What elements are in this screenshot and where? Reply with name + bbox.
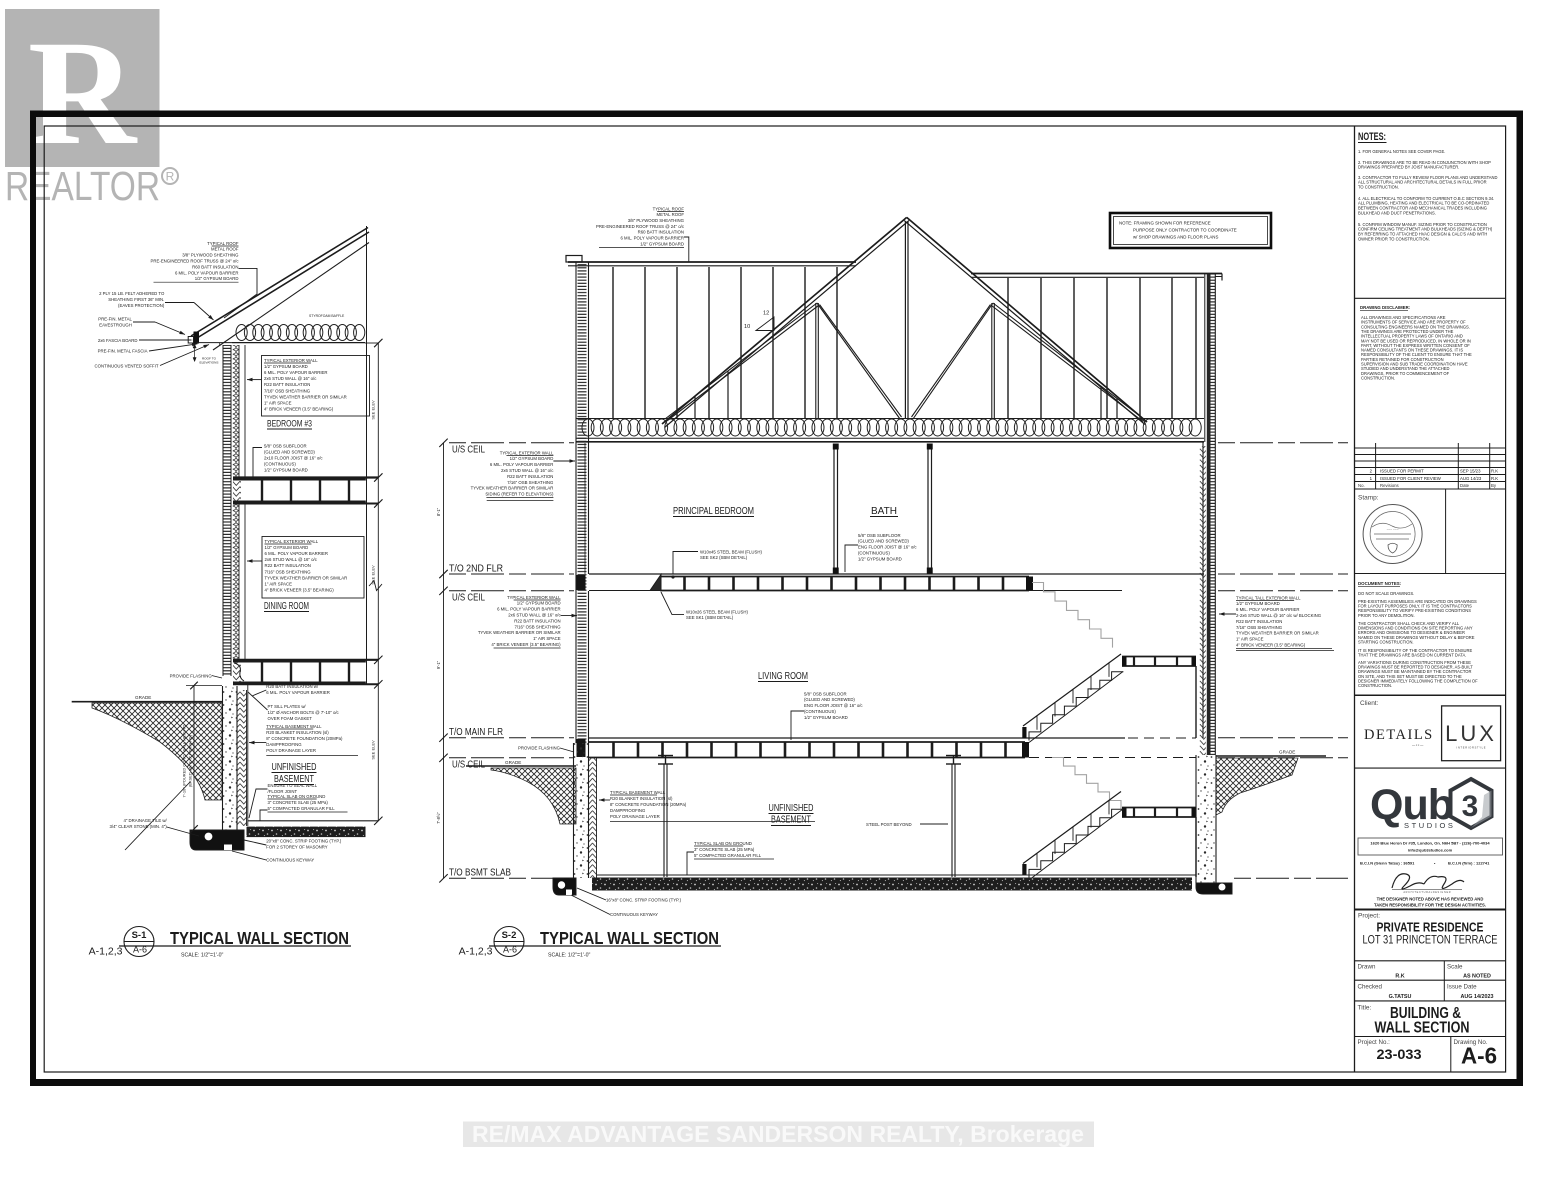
svg-text:TYVEK WEATHER BARRIER OR SIMIL: TYVEK WEATHER BARRIER OR SIMILAR	[264, 394, 347, 399]
svg-text:TYVEK WEATHER BARRIER OR SIMIL: TYVEK WEATHER BARRIER OR SIMILAR	[1236, 631, 1319, 636]
svg-text:DETAILS: DETAILS	[1364, 727, 1434, 743]
svg-text:REALTOR: REALTOR	[5, 163, 160, 209]
svg-text:(EAVES PROTECTION): (EAVES PROTECTION)	[118, 303, 165, 308]
svg-text:(GLUED AND SCREWED): (GLUED AND SCREWED)	[264, 449, 315, 454]
svg-text:POLY DRAINAGE LAYER: POLY DRAINAGE LAYER	[266, 748, 316, 753]
svg-text:Drawn: Drawn	[1358, 964, 1376, 971]
svg-text:Project:: Project:	[1358, 913, 1380, 920]
svg-text:1" AIR SPACE: 1" AIR SPACE	[1236, 637, 1264, 642]
svg-text:1/2" GYPSUM BOARD: 1/2" GYPSUM BOARD	[264, 364, 308, 369]
svg-text:TYPICAL BASEMENT WALL: TYPICAL BASEMENT WALL	[266, 724, 322, 729]
svg-text:1/2" GYPSUM BOARD: 1/2" GYPSUM BOARD	[195, 276, 239, 281]
svg-text:7/16" OSB SHEATHING: 7/16" OSB SHEATHING	[264, 388, 311, 393]
svg-text:DOCUMENT NOTES:: DOCUMENT NOTES:	[1358, 581, 1402, 586]
svg-text:R.K: R.K	[1395, 974, 1404, 980]
svg-text:R22 BATT INSULATION: R22 BATT INSULATION	[265, 563, 311, 568]
svg-text:2x6 STUD WALL @ 16" o/c: 2x6 STUD WALL @ 16" o/c	[508, 613, 561, 618]
svg-text:By: By	[1491, 483, 1497, 488]
svg-text:6 MIL. POLY VAPOUR BARRIER: 6 MIL. POLY VAPOUR BARRIER	[490, 462, 554, 467]
svg-text:3/8" PLYWOOD SHEATHING: 3/8" PLYWOOD SHEATHING	[628, 218, 685, 223]
svg-text:DINING ROOM: DINING ROOM	[264, 601, 309, 612]
svg-text:S-2: S-2	[502, 930, 517, 941]
svg-text:LIVING ROOM: LIVING ROOM	[758, 671, 808, 682]
svg-text:CONTINUOUS KEYWAY: CONTINUOUS KEYWAY	[266, 858, 314, 863]
svg-text:5/8" OSB SUBFLOOR: 5/8" OSB SUBFLOOR	[804, 691, 847, 696]
svg-text:Title:: Title:	[1358, 1005, 1372, 1012]
svg-text:20"x8" CONC. STRIP FOOTING (TY: 20"x8" CONC. STRIP FOOTING (TYP.)	[266, 838, 342, 843]
svg-text:ISSUED FOR CLIENT REVIEW: ISSUED FOR CLIENT REVIEW	[1380, 476, 1442, 481]
svg-text:TYPICAL ROOF: TYPICAL ROOF	[653, 206, 685, 211]
svg-text:T/O MAIN FLR: T/O MAIN FLR	[449, 727, 503, 738]
svg-text:TYPICAL WALL SECTION: TYPICAL WALL SECTION	[170, 928, 349, 948]
svg-text:SEE ELEV: SEE ELEV	[371, 400, 376, 420]
svg-text:LOT 31 PRINCETON TERRACE: LOT 31 PRINCETON TERRACE	[1363, 933, 1498, 947]
svg-text:TYPICAL SLAB ON GROUND: TYPICAL SLAB ON GROUND	[268, 794, 326, 799]
svg-text:1/2" GYPSUM BOARD: 1/2" GYPSUM BOARD	[1236, 601, 1280, 606]
svg-text:TYPICAL ROOF: TYPICAL ROOF	[207, 241, 239, 246]
svg-text:SEE SK1 (SBM DETAIL): SEE SK1 (SBM DETAIL)	[686, 615, 734, 620]
svg-text:OVER FOAM GASKET: OVER FOAM GASKET	[268, 716, 313, 721]
svg-text:CONSTRUCTION.: CONSTRUCTION.	[1361, 375, 1395, 380]
svg-text:3" CONCRETE SLAB (25 MPa): 3" CONCRETE SLAB (25 MPa)	[268, 800, 329, 805]
svg-text:R20 BLANKET INSULATION (sl): R20 BLANKET INSULATION (sl)	[266, 730, 329, 735]
svg-text:1/2" GYPSUM BOARD: 1/2" GYPSUM BOARD	[640, 241, 684, 246]
svg-text:POLY DRAINAGE LAYER: POLY DRAINAGE LAYER	[610, 814, 660, 819]
svg-text:12: 12	[763, 311, 769, 317]
svg-text:4" BRICK VENEER (3.5" BEARING): 4" BRICK VENEER (3.5" BEARING)	[264, 407, 334, 412]
svg-text:CONTINUOUS KEYWAY: CONTINUOUS KEYWAY	[610, 912, 658, 917]
svg-text:4" BRICK VENEER (3.5" BEARING): 4" BRICK VENEER (3.5" BEARING)	[265, 588, 335, 593]
svg-text:1" AIR SPACE: 1" AIR SPACE	[533, 636, 561, 641]
svg-text:8" CONCRETE FOUNDATION (20MPa): 8" CONCRETE FOUNDATION (20MPa)	[610, 802, 687, 807]
svg-text:Issue Date: Issue Date	[1447, 984, 1477, 991]
svg-text:R.K: R.K	[1491, 476, 1498, 481]
svg-text:UNFINISHED: UNFINISHED	[769, 803, 814, 814]
svg-text:3" CONCRETE SLAB (25 MPa): 3" CONCRETE SLAB (25 MPa)	[694, 847, 755, 852]
svg-text:Date: Date	[1460, 483, 1470, 488]
svg-text:3: 3	[1462, 790, 1479, 823]
svg-text:ENSURE TO SEAL WALL: ENSURE TO SEAL WALL	[268, 783, 318, 788]
svg-text:SCALE: 1/2"=1'-0": SCALE: 1/2"=1'-0"	[181, 953, 223, 959]
svg-text:SCALE: 1/2"=1'-0": SCALE: 1/2"=1'-0"	[548, 953, 590, 959]
svg-text:10: 10	[744, 324, 750, 330]
svg-text:SEE SK2 (SBM DETAIL): SEE SK2 (SBM DETAIL)	[700, 555, 748, 560]
svg-text:UNFINISHED: UNFINISHED	[272, 762, 317, 773]
svg-text:6 MIL. POLY VAPOUR BARRIER: 6 MIL. POLY VAPOUR BARRIER	[1236, 607, 1300, 612]
svg-text:4" BRICK VENEER (3.5" BEARING): 4" BRICK VENEER (3.5" BEARING)	[1236, 643, 1306, 648]
svg-text:2-2x6 STUD WALL @ 16" o/c w/ B: 2-2x6 STUD WALL @ 16" o/c w/ BLOCKING	[1236, 613, 1322, 618]
svg-text:TAKEN RESPONSIBILITY FOR THE D: TAKEN RESPONSIBILITY FOR THE DESIGN ACTI…	[1374, 903, 1486, 908]
svg-text:2x6 STUD WALL @ 16" o/c: 2x6 STUD WALL @ 16" o/c	[501, 468, 554, 473]
svg-text:Client:: Client:	[1360, 700, 1379, 707]
svg-text:A-1,2,3: A-1,2,3	[89, 946, 123, 958]
svg-text:CONSTRUCTION.: CONSTRUCTION.	[1358, 683, 1392, 688]
svg-text:PRINCIPAL BEDROOM: PRINCIPAL BEDROOM	[673, 505, 754, 517]
svg-text:7/16" OSB SHEATHING: 7/16" OSB SHEATHING	[514, 624, 561, 629]
svg-text:STEEL POST BEYOND: STEEL POST BEYOND	[866, 822, 912, 827]
svg-text:2x6 STUD WALL @ 16" o/c: 2x6 STUD WALL @ 16" o/c	[265, 557, 318, 562]
svg-text:6 MIL. POLY VAPOUR BARRIER: 6 MIL. POLY VAPOUR BARRIER	[265, 551, 329, 556]
svg-text:Project No.:: Project No.:	[1358, 1039, 1391, 1046]
svg-text:NOTE: FRAMING SHOWN FOR REFERE: NOTE: FRAMING SHOWN FOR REFERENCE	[1119, 221, 1211, 226]
svg-text:EAVESTROUGH: EAVESTROUGH	[99, 323, 132, 328]
svg-text:R60 BATT INSULATION: R60 BATT INSULATION	[192, 264, 238, 269]
svg-text:PRE-ENGINEERED ROOF TRUSS @ 24: PRE-ENGINEERED ROOF TRUSS @ 24" o/c	[151, 259, 240, 264]
svg-text:SHEATHING FIRST 36" MIN.: SHEATHING FIRST 36" MIN.	[108, 297, 164, 302]
svg-text:TYPICAL EXTERIOR WALL: TYPICAL EXTERIOR WALL	[264, 358, 318, 363]
svg-text:PRE-FIN. METAL FASCIA: PRE-FIN. METAL FASCIA	[98, 349, 148, 354]
svg-text:5/8" OSB SUBFLOOR: 5/8" OSB SUBFLOOR	[264, 443, 307, 448]
svg-text:1620 Blue Heron Dr #35, London: 1620 Blue Heron Dr #35, London, On. N6H …	[1370, 841, 1490, 846]
svg-text:BASEMENT: BASEMENT	[771, 815, 811, 826]
svg-text:SIDING (REFER TO ELEVATIONS): SIDING (REFER TO ELEVATIONS)	[485, 492, 554, 497]
svg-text:1/2" GYPSUM BOARD: 1/2" GYPSUM BOARD	[804, 715, 848, 720]
svg-text:PRIOR TO ANY DEMOLITION.: PRIOR TO ANY DEMOLITION.	[1358, 613, 1415, 618]
svg-text:TO CONSTRUCTION.: TO CONSTRUCTION.	[1358, 185, 1399, 190]
svg-text:BATH: BATH	[871, 505, 897, 517]
svg-text:PT SILL PLATES w/: PT SILL PLATES w/	[268, 704, 307, 709]
svg-text:DAMPPROOFING: DAMPPROOFING	[610, 808, 646, 813]
svg-text:SEP 15/23: SEP 15/23	[1460, 469, 1481, 474]
svg-text:ELEVATIONS: ELEVATIONS	[200, 361, 219, 365]
svg-text:STUDIOS: STUDIOS	[1404, 821, 1456, 830]
svg-text:Scale: Scale	[1447, 964, 1463, 971]
svg-text:PROVIDE FLASHING: PROVIDE FLASHING	[170, 673, 213, 678]
svg-text:(GLUED AND SCREWED): (GLUED AND SCREWED)	[858, 539, 909, 544]
svg-text:NOTES:: NOTES:	[1358, 131, 1386, 143]
svg-text:2x10 FLOOR JOIST @ 16" o/c: 2x10 FLOOR JOIST @ 16" o/c	[264, 455, 323, 460]
svg-text:16"x8" CONC. STRIP FOOTING (TY: 16"x8" CONC. STRIP FOOTING (TYP.)	[606, 898, 682, 903]
svg-text:TYPICAL EXTERIOR WALL: TYPICAL EXTERIOR WALL	[265, 539, 319, 544]
svg-text:W10x26 STEEL BEAM (FLUSH): W10x26 STEEL BEAM (FLUSH)	[686, 609, 748, 614]
svg-text:1/2" Ø ANCHOR BOLTS @ 7'-10" o: 1/2" Ø ANCHOR BOLTS @ 7'-10" o/c	[268, 710, 340, 715]
svg-text:7/16" OSB SHEATHING: 7/16" OSB SHEATHING	[1236, 625, 1283, 630]
svg-text:METAL ROOF: METAL ROOF	[211, 247, 239, 252]
svg-text:3/4" CLEAR STONE (MIN. 4"): 3/4" CLEAR STONE (MIN. 4")	[110, 824, 168, 829]
svg-text:6 MIL. POLY VAPOUR BARRIER: 6 MIL. POLY VAPOUR BARRIER	[266, 690, 330, 695]
svg-text:ENG FLOOR JOIST @ 16" o/c: ENG FLOOR JOIST @ 16" o/c	[858, 545, 917, 550]
svg-text:GRADE: GRADE	[1279, 750, 1295, 755]
svg-text:TYVEK WEATHER BARRIER OR SIMIL: TYVEK WEATHER BARRIER OR SIMILAR	[478, 630, 561, 635]
svg-text:4" BRICK VENEER (3.5" BEARING): 4" BRICK VENEER (3.5" BEARING)	[491, 642, 561, 647]
svg-text:U/S CEIL: U/S CEIL	[452, 760, 485, 771]
svg-text:R22 BATT INSULATION: R22 BATT INSULATION	[507, 474, 553, 479]
svg-text:PRE-FIN. METAL: PRE-FIN. METAL	[98, 316, 132, 321]
svg-text:FOR 2 STOREY OF MASONRY: FOR 2 STOREY OF MASONRY	[266, 844, 327, 849]
svg-text:1. FOR GENERAL NOTES SEE COVER: 1. FOR GENERAL NOTES SEE COVER PAGE.	[1358, 149, 1445, 154]
svg-text:9'-1": 9'-1"	[436, 660, 441, 669]
svg-text:2 PLY 15 LB. FELT ADHERED TO: 2 PLY 15 LB. FELT ADHERED TO	[99, 291, 165, 296]
svg-text:Checked: Checked	[1358, 984, 1383, 991]
svg-text:R22 BATT INSULATION: R22 BATT INSULATION	[264, 382, 310, 387]
svg-text:DAMPPROOFING: DAMPPROOFING	[266, 742, 302, 747]
svg-text:~~~ ~~~: ~~~ ~~~	[1387, 528, 1399, 532]
svg-text:info@qub3studios.com: info@qub3studios.com	[1408, 848, 1453, 853]
svg-text:TYVEK WEATHER BARRIER OR SIMIL: TYVEK WEATHER BARRIER OR SIMILAR	[471, 486, 554, 491]
svg-text:w/ SHOP DRAWINGS AND FLOOR PLA: w/ SHOP DRAWINGS AND FLOOR PLANS	[1133, 235, 1218, 240]
svg-text:CONTINUOUS VENTED SOFFIT: CONTINUOUS VENTED SOFFIT	[95, 364, 159, 369]
svg-text:1" AIR SPACE: 1" AIR SPACE	[264, 401, 292, 406]
svg-text:T/O 2ND FLR: T/O 2ND FLR	[449, 564, 503, 575]
svg-text:4" DRAINAGE TILE w/: 4" DRAINAGE TILE w/	[123, 818, 167, 823]
svg-text:TYPICAL EXTERIOR WALL: TYPICAL EXTERIOR WALL	[507, 595, 561, 600]
svg-text:PROVIDE FLASHING: PROVIDE FLASHING	[518, 746, 561, 751]
svg-text:AUG 14/23: AUG 14/23	[1460, 476, 1482, 481]
svg-text:BULKHEAD AND DUCT PENETRATIONS: BULKHEAD AND DUCT PENETRATIONS.	[1358, 211, 1436, 216]
svg-text:1/2" GYPSUM BOARD: 1/2" GYPSUM BOARD	[264, 467, 308, 472]
svg-text:TYPICAL SLAB ON GROUND: TYPICAL SLAB ON GROUND	[694, 841, 752, 846]
svg-text:R.K: R.K	[1491, 469, 1498, 474]
svg-text:GRADE: GRADE	[135, 695, 151, 700]
svg-text:1/2" GYPSUM BOARD: 1/2" GYPSUM BOARD	[510, 456, 554, 461]
svg-text:U/S CEIL: U/S CEIL	[452, 445, 485, 456]
svg-text:ENG FLOOR JOIST @ 16" o/c: ENG FLOOR JOIST @ 16" o/c	[804, 703, 863, 708]
svg-text:6 MIL. POLY VAPOUR BARRIER: 6 MIL. POLY VAPOUR BARRIER	[497, 607, 561, 612]
svg-text:2x6 FASCIA BOARD: 2x6 FASCIA BOARD	[98, 338, 138, 343]
svg-text:(CONTINUOUS): (CONTINUOUS)	[858, 551, 890, 556]
svg-text:B.C.I.N (firm) : 122741: B.C.I.N (firm) : 122741	[1448, 861, 1490, 866]
svg-text:BEDROOM #3: BEDROOM #3	[267, 419, 312, 430]
svg-text:TYPICAL EXTERIOR WALL: TYPICAL EXTERIOR WALL	[500, 450, 554, 455]
svg-text:STARTING CONSTRUCTION.: STARTING CONSTRUCTION.	[1358, 639, 1414, 644]
svg-text:R60 BATT INSULATION: R60 BATT INSULATION	[638, 230, 684, 235]
svg-text:8" CONCRETE FOUNDATION (20MPa): 8" CONCRETE FOUNDATION (20MPa)	[266, 736, 343, 741]
svg-text:S-1: S-1	[132, 930, 148, 941]
svg-text:6 MIL. POLY VAPOUR BARRIER: 6 MIL. POLY VAPOUR BARRIER	[264, 370, 328, 375]
svg-text:7/16" OSB SHEATHING: 7/16" OSB SHEATHING	[265, 569, 312, 574]
svg-text:PURPOSE ONLY CONTRACTOR TO COO: PURPOSE ONLY CONTRACTOR TO COORDINATE	[1133, 228, 1237, 233]
svg-text:GRADE: GRADE	[505, 760, 521, 765]
svg-text:Stamp:: Stamp:	[1358, 495, 1379, 502]
svg-text:DRAWING DISCLAIMER:: DRAWING DISCLAIMER:	[1360, 305, 1411, 310]
svg-text:OWNER PRIOR TO CONSTRUCTION.: OWNER PRIOR TO CONSTRUCTION.	[1358, 237, 1430, 242]
svg-text:TYPICAL BASEMENT WALL: TYPICAL BASEMENT WALL	[610, 790, 666, 795]
svg-text:A-6: A-6	[1461, 1043, 1497, 1069]
svg-text:(CONTINUOUS): (CONTINUOUS)	[264, 461, 296, 466]
svg-text:DRAWINGS PREPARED BY JOIST MAN: DRAWINGS PREPARED BY JOIST MANUFACTURER.	[1358, 165, 1459, 170]
svg-text:STYROFOAM BAFFLE: STYROFOAM BAFFLE	[309, 314, 345, 318]
svg-text:R: R	[166, 170, 175, 184]
svg-text:G.TATSU: G.TATSU	[1389, 994, 1412, 1000]
svg-text:— ▪ ▪ —: — ▪ ▪ —	[1412, 743, 1424, 747]
svg-text:1/2" GYPSUM BOARD: 1/2" GYPSUM BOARD	[858, 556, 902, 561]
svg-text:R20 BATT INSULATION w/: R20 BATT INSULATION w/	[266, 684, 319, 689]
svg-text:T/O BSMT SLAB: T/O BSMT SLAB	[449, 868, 511, 879]
svg-text:B.C.I.N (Glenn Tatsu) : 36591: B.C.I.N (Glenn Tatsu) : 36591	[1360, 861, 1415, 866]
svg-text:TYPICAL WALL SECTION: TYPICAL WALL SECTION	[540, 928, 719, 948]
svg-text:PRE-ENGINEERED ROOF TRUSS @ 24: PRE-ENGINEERED ROOF TRUSS @ 24" o/c	[596, 224, 685, 229]
svg-text:3/8" PLYWOOD SHEATHING: 3/8" PLYWOOD SHEATHING	[182, 253, 239, 258]
svg-text:6 MIL. POLY VAPOUR BARRIER: 6 MIL. POLY VAPOUR BARRIER	[620, 236, 684, 241]
svg-text:THAT THE DRAWINGS ARE BASED ON: THAT THE DRAWINGS ARE BASED ON CURRENT D…	[1358, 653, 1466, 658]
svg-text:LUX: LUX	[1445, 721, 1497, 746]
svg-text:5" COMPACTED GRANULAR FILL: 5" COMPACTED GRANULAR FILL	[268, 806, 336, 811]
svg-text:1/2" GYPSUM BOARD: 1/2" GYPSUM BOARD	[265, 545, 309, 550]
svg-text:DO NOT SCALE DRAWINGS.: DO NOT SCALE DRAWINGS.	[1358, 591, 1414, 596]
svg-text:Revisions: Revisions	[1380, 483, 1399, 488]
svg-text:AUG 14/2023: AUG 14/2023	[1461, 994, 1494, 1000]
svg-text:1/2" GYPSUM BOARD: 1/2" GYPSUM BOARD	[517, 601, 561, 606]
svg-text:A-1,2,3: A-1,2,3	[459, 946, 493, 958]
svg-text:R22 BATT INSULATION: R22 BATT INSULATION	[1236, 619, 1282, 624]
svg-text:No.: No.	[1358, 483, 1365, 488]
svg-text:8'-1": 8'-1"	[436, 507, 441, 516]
svg-text:I N T E R I O R S T Y L E: I N T E R I O R S T Y L E	[1457, 746, 1486, 750]
svg-text:23-033: 23-033	[1377, 1046, 1422, 1062]
svg-text:5/8" OSB SUBFLOOR: 5/8" OSB SUBFLOOR	[858, 533, 901, 538]
svg-text:RE/MAX ADVANTAGE SANDERSON REA: RE/MAX ADVANTAGE SANDERSON REALTY, Broke…	[472, 1121, 1084, 1147]
svg-text:7'-8½": 7'-8½"	[436, 812, 441, 824]
svg-text:7/16" OSB SHEATHING: 7/16" OSB SHEATHING	[507, 480, 554, 485]
svg-text:THE DESIGNER NOTED ABOVE HAS R: THE DESIGNER NOTED ABOVE HAS REVIEWED AN…	[1377, 897, 1484, 902]
svg-text:6 MIL. POLY VAPOUR BARRIER: 6 MIL. POLY VAPOUR BARRIER	[175, 270, 239, 275]
svg-text:(GLUED AND SCREWED): (GLUED AND SCREWED)	[804, 697, 855, 702]
svg-text:1" AIR SPACE: 1" AIR SPACE	[265, 582, 293, 587]
svg-text:2x6 STUD WALL @ 16" o/c: 2x6 STUD WALL @ 16" o/c	[264, 376, 317, 381]
svg-text:TYVEK WEATHER BARRIER OR SIMIL: TYVEK WEATHER BARRIER OR SIMILAR	[265, 575, 348, 580]
svg-text:R20 BLANKET INSULATION (sl): R20 BLANKET INSULATION (sl)	[610, 796, 673, 801]
svg-text:W10x45 STEEL BEAM (FLUSH): W10x45 STEEL BEAM (FLUSH)	[700, 549, 762, 554]
svg-text:WALL SECTION: WALL SECTION	[1375, 1020, 1470, 1037]
svg-text:ISSUED FOR PERMIT: ISSUED FOR PERMIT	[1380, 469, 1424, 474]
svg-text:TYPICAL TALL EXTERIOR WALL: TYPICAL TALL EXTERIOR WALL	[1236, 595, 1301, 600]
svg-text:(BASED ON 8'-0" FORM HT.): (BASED ON 8'-0" FORM HT.)	[188, 734, 193, 787]
svg-text:SEE ELEV: SEE ELEV	[371, 740, 376, 760]
svg-text:U/S CEIL: U/S CEIL	[452, 593, 485, 604]
svg-text:AS NOTED: AS NOTED	[1463, 974, 1491, 980]
svg-text:(CONTINUOUS): (CONTINUOUS)	[804, 709, 836, 714]
svg-text:5" COMPACTED GRANULAR FILL: 5" COMPACTED GRANULAR FILL	[694, 853, 762, 858]
svg-text:R22 BATT INSULATION: R22 BATT INSULATION	[514, 618, 560, 623]
svg-text:METAL ROOF: METAL ROOF	[657, 212, 685, 217]
svg-text:A R C H I T E C T U R A L D: A R C H I T E C T U R A L D E S I G N E …	[1403, 891, 1450, 894]
